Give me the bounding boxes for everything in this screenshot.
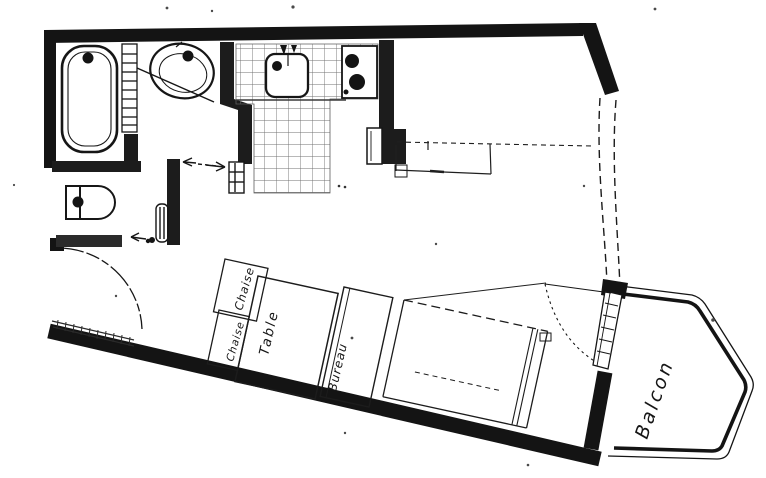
bathroom (52, 37, 252, 172)
balcony-glazed-door (593, 291, 622, 369)
kitchen-sink (266, 54, 308, 97)
bathtub-drain (83, 53, 94, 64)
washbasin (144, 37, 219, 105)
label-balcony: Balcon (631, 357, 679, 442)
wall-left (44, 30, 56, 168)
floor-plan-page: Chaise Chaise Table Bureau Balcon (0, 0, 766, 478)
wall-wc-bottom (56, 235, 122, 247)
fridge (367, 128, 382, 164)
wall-top (45, 23, 583, 43)
burner-2 (349, 74, 365, 90)
wc-room (56, 159, 180, 329)
wall-right-lower (591, 372, 605, 449)
toilet-flush (73, 197, 84, 208)
label-chair-top: Chaise (231, 265, 257, 312)
kitchen (229, 40, 407, 193)
bathtub-inner (68, 52, 111, 146)
stove-knob (344, 90, 349, 95)
wall-wc-right (167, 159, 180, 245)
wall-bathroom-stub (124, 134, 138, 161)
entry-arrows (183, 158, 225, 171)
washbasin-tap (183, 51, 194, 62)
balcony-railing (608, 286, 753, 459)
wc-arrow (131, 233, 150, 243)
towel-rail (122, 44, 137, 132)
shelf-unit (229, 162, 244, 193)
floor-plan-canvas: Chaise Chaise Table Bureau Balcon (0, 0, 766, 478)
radiator (156, 204, 168, 242)
wardrobe (396, 141, 592, 174)
entry-door-swing (58, 248, 142, 329)
room-divider-line (404, 283, 546, 300)
cabinet-small (395, 165, 407, 177)
burner-1 (345, 54, 359, 68)
wall-bathroom-bottom (52, 161, 141, 172)
wall-top-right-angled (579, 23, 619, 95)
sink-drain (272, 61, 282, 71)
label-desk: Bureau (325, 342, 350, 393)
window-wall-dashed (599, 98, 620, 288)
wall-bottom-diagonal (49, 331, 600, 459)
balcony-rail-outer (608, 286, 753, 459)
label-table: Table (256, 309, 282, 357)
